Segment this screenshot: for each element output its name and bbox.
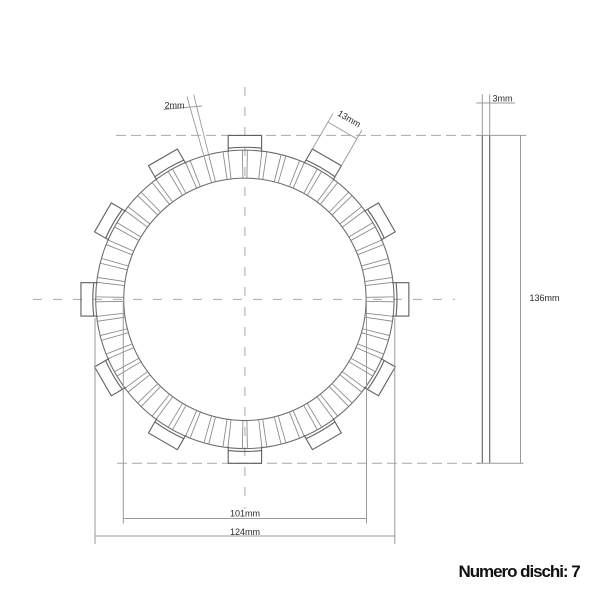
svg-text:13mm: 13mm	[336, 108, 363, 129]
svg-text:124mm: 124mm	[230, 527, 260, 537]
svg-text:2mm: 2mm	[165, 100, 185, 110]
svg-text:3mm: 3mm	[493, 93, 513, 103]
svg-text:101mm: 101mm	[230, 509, 260, 519]
svg-text:136mm: 136mm	[530, 293, 560, 303]
svg-text:Numero dischi: 7: Numero dischi: 7	[459, 562, 581, 581]
